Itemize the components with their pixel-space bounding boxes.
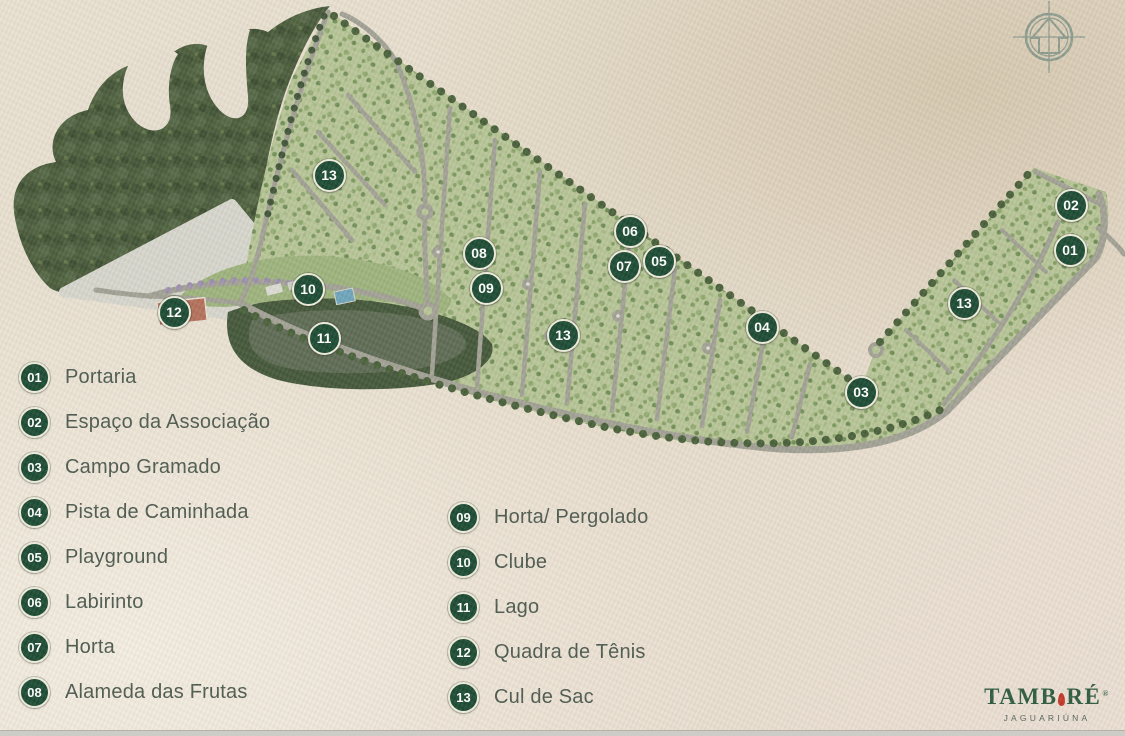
legend-label: Campo Gramado <box>65 456 221 479</box>
legend-label: Cul de Sac <box>494 686 594 709</box>
legend-column-2: 09Horta/ Pergolado10Clube11Lago12Quadra … <box>448 504 648 711</box>
legend-item-04: 04Pista de Caminhada <box>19 499 270 526</box>
legend-item-03: 03Campo Gramado <box>19 454 270 481</box>
legend-item-09: 09Horta/ Pergolado <box>448 504 648 531</box>
map-marker-09[interactable]: 09 <box>470 272 503 305</box>
legend-number-badge: 13 <box>448 682 479 713</box>
map-marker-13[interactable]: 13 <box>948 287 981 320</box>
map-marker-12[interactable]: 12 <box>158 296 191 329</box>
legend-label: Quadra de Tênis <box>494 641 646 664</box>
map-marker-11[interactable]: 11 <box>308 322 341 355</box>
logo-flame-icon <box>1058 693 1065 706</box>
legend-label: Labirinto <box>65 591 144 614</box>
legend-column-1: 01Portaria02Espaço da Associação03Campo … <box>19 364 270 706</box>
registered-mark: ® <box>1102 689 1109 698</box>
legend-number-badge: 10 <box>448 547 479 578</box>
legend-number-badge: 11 <box>448 592 479 623</box>
compass-north-icon <box>1013 1 1085 73</box>
legend-number-badge: 05 <box>19 542 50 573</box>
legend-label: Alameda das Frutas <box>65 681 248 704</box>
legend-label: Horta/ Pergolado <box>494 506 648 529</box>
map-marker-06[interactable]: 06 <box>614 215 647 248</box>
legend-item-08: 08Alameda das Frutas <box>19 679 270 706</box>
map-marker-04[interactable]: 04 <box>746 311 779 344</box>
legend-number-badge: 08 <box>19 677 50 708</box>
logo-brand: TAMB RÉ ® <box>981 684 1113 710</box>
legend-item-10: 10Clube <box>448 549 648 576</box>
legend-item-05: 05Playground <box>19 544 270 571</box>
legend-number-badge: 09 <box>448 502 479 533</box>
legend-item-02: 02Espaço da Associação <box>19 409 270 436</box>
legend-item-13: 13Cul de Sac <box>448 684 648 711</box>
logo-brand-right: RÉ <box>1066 684 1101 710</box>
map-marker-03[interactable]: 03 <box>845 376 878 409</box>
map-marker-05[interactable]: 05 <box>643 245 676 278</box>
legend-number-badge: 07 <box>19 632 50 663</box>
map-marker-13[interactable]: 13 <box>547 319 580 352</box>
legend-item-11: 11Lago <box>448 594 648 621</box>
legend-label: Pista de Caminhada <box>65 501 249 524</box>
legend-number-badge: 01 <box>19 362 50 393</box>
legend-label: Clube <box>494 551 547 574</box>
legend-item-06: 06Labirinto <box>19 589 270 616</box>
legend-number-badge: 06 <box>19 587 50 618</box>
legend-label: Horta <box>65 636 115 659</box>
legend-number-badge: 03 <box>19 452 50 483</box>
legend-number-badge: 02 <box>19 407 50 438</box>
legend-label: Portaria <box>65 366 137 389</box>
legend-item-01: 01Portaria <box>19 364 270 391</box>
tambore-logo: TAMB RÉ ® JAGUARIÚNA <box>981 684 1113 723</box>
legend-label: Playground <box>65 546 168 569</box>
logo-brand-left: TAMB <box>984 684 1057 710</box>
map-marker-02[interactable]: 02 <box>1055 189 1088 222</box>
legend-item-07: 07Horta <box>19 634 270 661</box>
map-marker-08[interactable]: 08 <box>463 237 496 270</box>
legend-item-12: 12Quadra de Tênis <box>448 639 648 666</box>
map-marker-13[interactable]: 13 <box>313 159 346 192</box>
slide-bottom-edge <box>0 730 1125 736</box>
map-marker-07[interactable]: 07 <box>608 250 641 283</box>
map-marker-10[interactable]: 10 <box>292 273 325 306</box>
legend-label: Lago <box>494 596 539 619</box>
logo-subtitle: JAGUARIÚNA <box>981 713 1113 723</box>
map-marker-01[interactable]: 01 <box>1054 234 1087 267</box>
legend-number-badge: 12 <box>448 637 479 668</box>
legend-number-badge: 04 <box>19 497 50 528</box>
masterplan-slide: 130809101112060705041303130201 01Portari… <box>0 0 1125 736</box>
legend-label: Espaço da Associação <box>65 411 270 434</box>
